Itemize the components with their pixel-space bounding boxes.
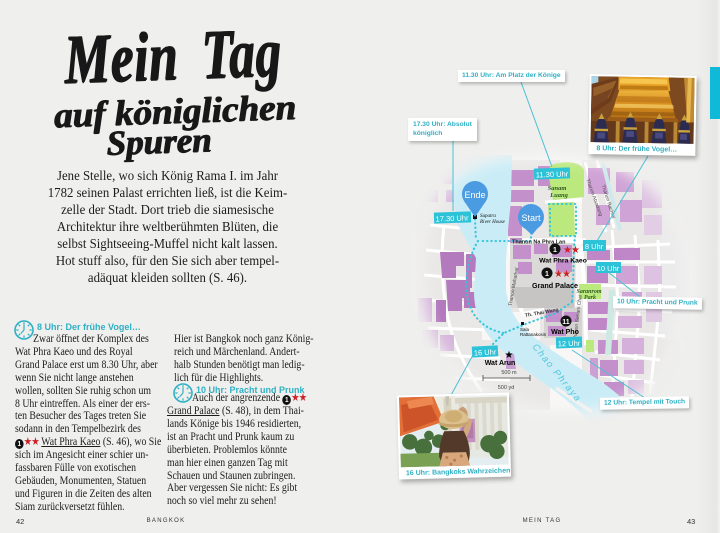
svg-text:16 Uhr: 16 Uhr: [474, 347, 497, 357]
svg-text:Wat Phra Kaeo: Wat Phra Kaeo: [539, 258, 587, 265]
svg-text:500 m: 500 m: [501, 370, 517, 376]
svg-text:Park: Park: [584, 295, 596, 301]
svg-text:Ende: Ende: [464, 190, 485, 200]
svg-text:Supatra: Supatra: [480, 214, 496, 219]
svg-text:500 yd: 500 yd: [498, 385, 515, 391]
svg-text:8 Uhr: 8 Uhr: [585, 242, 604, 251]
svg-text:1: 1: [545, 271, 549, 278]
svg-text:Luang: Luang: [549, 192, 568, 199]
svg-text:Grand Palace: Grand Palace: [532, 281, 578, 290]
svg-text:Wat Arun: Wat Arun: [485, 360, 516, 367]
svg-text:Start: Start: [521, 213, 541, 223]
svg-text:17.30 Uhr: 17.30 Uhr: [435, 213, 469, 223]
svg-text:Rattanakosin: Rattanakosin: [520, 332, 547, 337]
svg-text:11.30 Uhr: 11.30 Uhr: [536, 169, 569, 179]
svg-text:1: 1: [553, 247, 557, 254]
svg-text:★★: ★★: [554, 269, 571, 280]
svg-text:11: 11: [562, 319, 570, 326]
svg-text:10 Uhr: 10 Uhr: [597, 264, 620, 273]
svg-text:Sanam: Sanam: [548, 185, 567, 192]
svg-text:12 Uhr: 12 Uhr: [558, 339, 581, 349]
svg-text:Wat Pho: Wat Pho: [551, 329, 579, 336]
svg-text:★★: ★★: [563, 245, 580, 256]
svg-text:River House: River House: [479, 220, 506, 225]
